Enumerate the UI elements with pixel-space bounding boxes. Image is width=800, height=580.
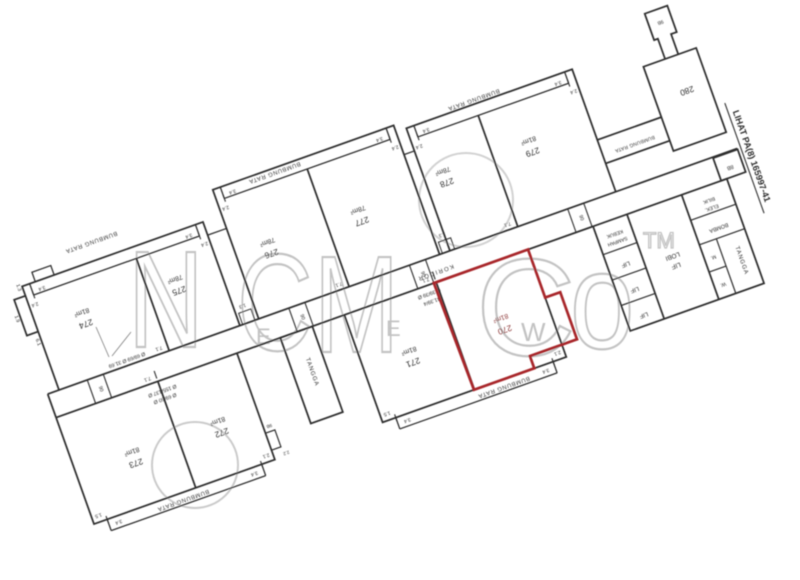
svg-text:o: o (570, 225, 634, 379)
svg-text:W: W (521, 317, 546, 347)
svg-text:M: M (314, 227, 399, 382)
svg-text:C: C (476, 231, 576, 385)
svg-text:E: E (386, 316, 401, 341)
svg-text:TM: TM (643, 228, 675, 253)
